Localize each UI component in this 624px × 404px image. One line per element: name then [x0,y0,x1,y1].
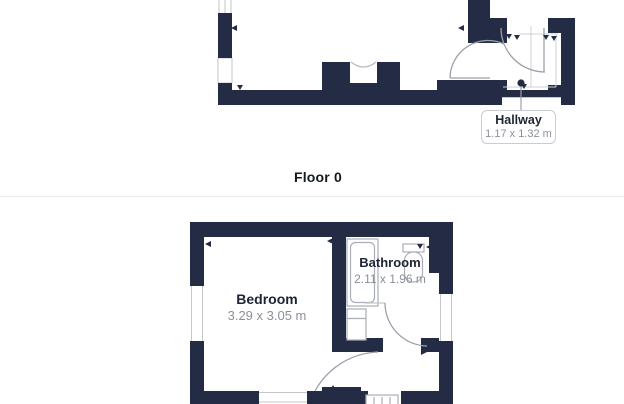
door-leaf-closed [322,387,361,391]
marker-arrow-icon [327,238,333,244]
room-label-hallway: Hallway 1.17 x 1.32 m [481,110,556,144]
wall-segment [190,391,259,404]
wall-segment [190,222,204,286]
room-label-bathroom: Bathroom 2.11 x 1.96 m [330,256,450,287]
window [439,294,453,341]
door-swing-arc [450,40,504,78]
sink-icon [347,309,366,340]
room-dimensions: 1.17 x 1.32 m [485,128,552,140]
table-icon [366,395,398,404]
room-name: Bedroom [187,291,347,307]
wall-segment [307,391,368,404]
room-label-bedroom: Bedroom 3.29 x 3.05 m [187,291,347,324]
floorplan-graphics [0,0,624,404]
marker-arrow-icon [514,35,520,40]
floor0-plan [218,0,575,111]
room-dimensions: 3.29 x 3.05 m [187,309,347,324]
wall-segment [421,338,439,352]
entrance-threshold [502,97,561,105]
wall-segment [218,13,232,58]
door-swing-arc [315,352,378,391]
sink-cabinet [347,309,366,340]
room-name: Bathroom [330,256,450,271]
floor-title: Floor 0 [258,169,378,185]
fireplace-icon [350,62,377,83]
wall-segment [490,18,507,43]
section-divider [0,196,624,197]
window [218,58,232,83]
door-swing-arc [385,303,427,346]
floorplan-viewer: Hallway 1.17 x 1.32 m Floor 0 Bedroom 3.… [0,0,624,404]
room-name: Hallway [495,114,542,128]
wall-segment [437,80,507,91]
wall-segment [190,222,453,237]
threshold [502,97,561,105]
wall-segment [468,0,490,43]
marker-arrow-icon [205,241,211,247]
room-dimensions: 2.11 x 1.96 m [330,273,450,287]
wall-segment [401,391,453,404]
marker-arrow-icon [458,25,464,31]
marker-arrow-icon [237,85,243,90]
